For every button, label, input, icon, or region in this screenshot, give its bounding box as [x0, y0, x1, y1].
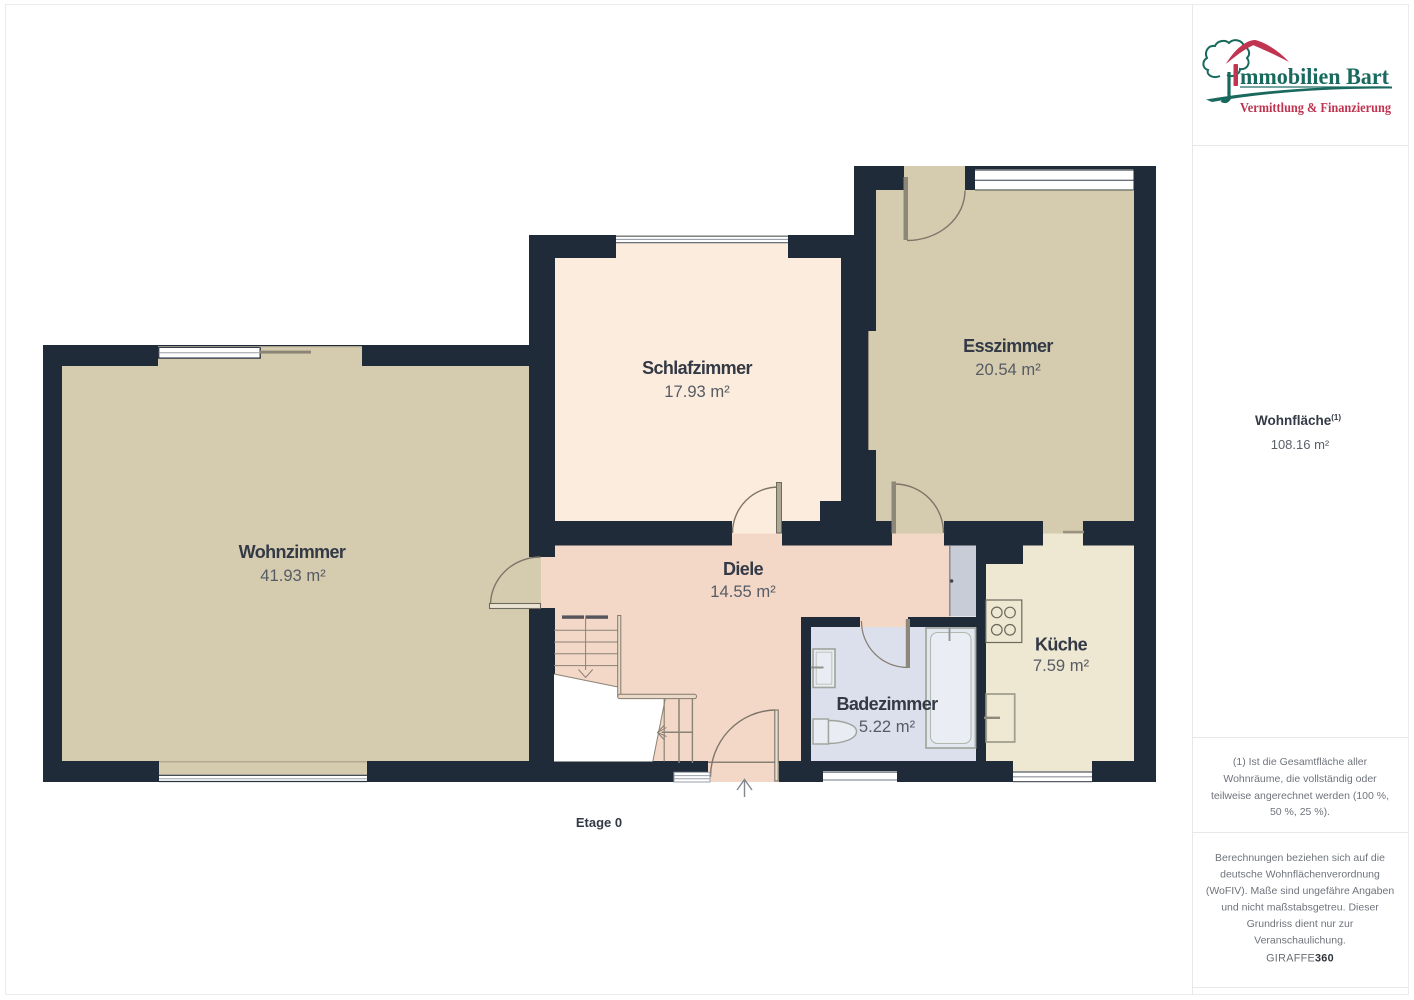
svg-text:(1) Ist die Gesamtfläche aller: (1) Ist die Gesamtfläche aller — [1233, 756, 1368, 768]
svg-text:Wohnfläche(1): Wohnfläche(1) — [1255, 413, 1341, 428]
svg-text:5.22 m²: 5.22 m² — [859, 717, 916, 736]
svg-text:Schlafzimmer: Schlafzimmer — [642, 358, 752, 378]
svg-text:Grundriss dient nur zur: Grundriss dient nur zur — [1247, 918, 1354, 930]
svg-text:teilweise angerechnet werden (: teilweise angerechnet werden (100 %, — [1211, 790, 1389, 802]
svg-text:Etage 0: Etage 0 — [576, 815, 622, 830]
svg-text:7.59 m²: 7.59 m² — [1033, 656, 1090, 675]
svg-text:GIRAFFE360: GIRAFFE360 — [1266, 952, 1334, 964]
svg-text:41.93 m²: 41.93 m² — [260, 566, 326, 585]
svg-text:Badezimmer: Badezimmer — [836, 694, 938, 714]
svg-text:108.16 m²: 108.16 m² — [1271, 437, 1330, 452]
svg-text:Veranschaulichung.: Veranschaulichung. — [1254, 935, 1346, 947]
svg-text:Esszimmer: Esszimmer — [963, 336, 1053, 356]
svg-text:14.55 m²: 14.55 m² — [710, 582, 776, 601]
svg-text:und nicht maßstabsgetreu. Dies: und nicht maßstabsgetreu. Dieser — [1221, 902, 1379, 914]
svg-text:20.54 m²: 20.54 m² — [975, 360, 1041, 379]
svg-text:(WoFIV). Maße sind ungefähre A: (WoFIV). Maße sind ungefähre Angaben — [1206, 885, 1394, 897]
svg-text:17.93 m²: 17.93 m² — [664, 382, 730, 401]
svg-text:Berechnungen beziehen sich auf: Berechnungen beziehen sich auf die — [1215, 852, 1385, 864]
svg-text:deutsche Wohnflächenverordnung: deutsche Wohnflächenverordnung — [1220, 869, 1380, 881]
svg-text:Wohnräume, die vollständig ode: Wohnräume, die vollständig oder — [1223, 773, 1377, 785]
svg-text:mmobilien Bart: mmobilien Bart — [1240, 64, 1389, 89]
svg-text:Vermittlung & Finanzierung: Vermittlung & Finanzierung — [1240, 100, 1391, 115]
svg-text:50 %, 25 %).: 50 %, 25 %). — [1270, 806, 1330, 818]
svg-text:Küche: Küche — [1035, 635, 1088, 655]
svg-text:Wohnzimmer: Wohnzimmer — [239, 542, 346, 562]
svg-text:Diele: Diele — [723, 559, 764, 579]
